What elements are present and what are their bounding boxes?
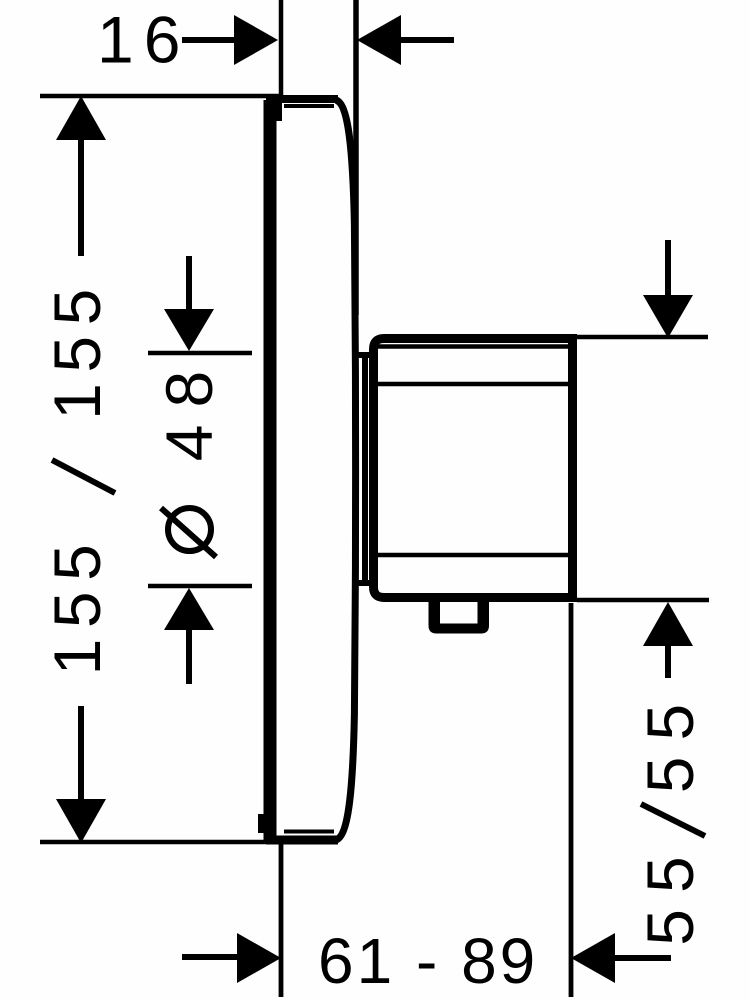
svg-text:55: 55: [633, 840, 707, 945]
svg-text:155: 155: [40, 278, 114, 420]
svg-text:61 - 89: 61 - 89: [318, 925, 538, 997]
svg-text:16: 16: [97, 3, 190, 77]
svg-text:55: 55: [633, 688, 707, 793]
svg-text:155: 155: [40, 534, 114, 676]
svg-text:48: 48: [152, 354, 226, 461]
